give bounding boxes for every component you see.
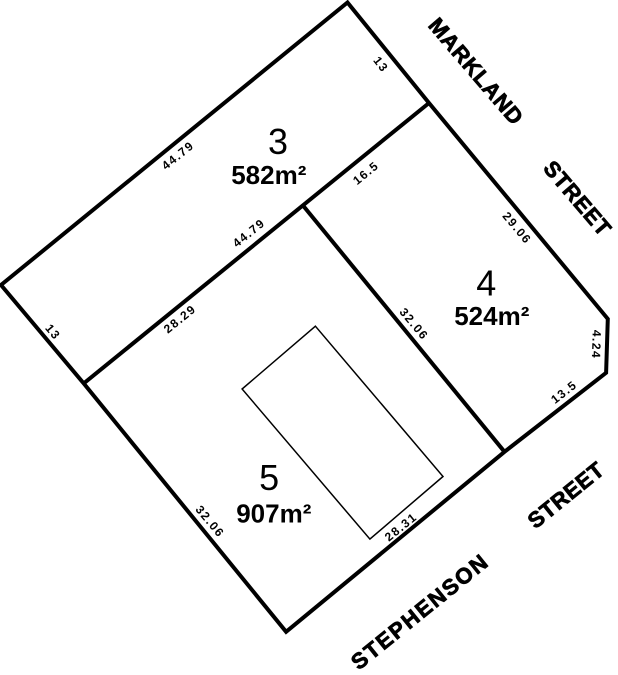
svg-text:5: 5: [259, 457, 279, 498]
svg-text:4: 4: [476, 263, 496, 304]
svg-text:524m²: 524m²: [454, 301, 529, 331]
svg-text:907m²: 907m²: [236, 498, 311, 528]
svg-text:3: 3: [268, 121, 288, 162]
svg-text:582m²: 582m²: [231, 160, 306, 190]
svg-text:4.24: 4.24: [589, 330, 604, 360]
